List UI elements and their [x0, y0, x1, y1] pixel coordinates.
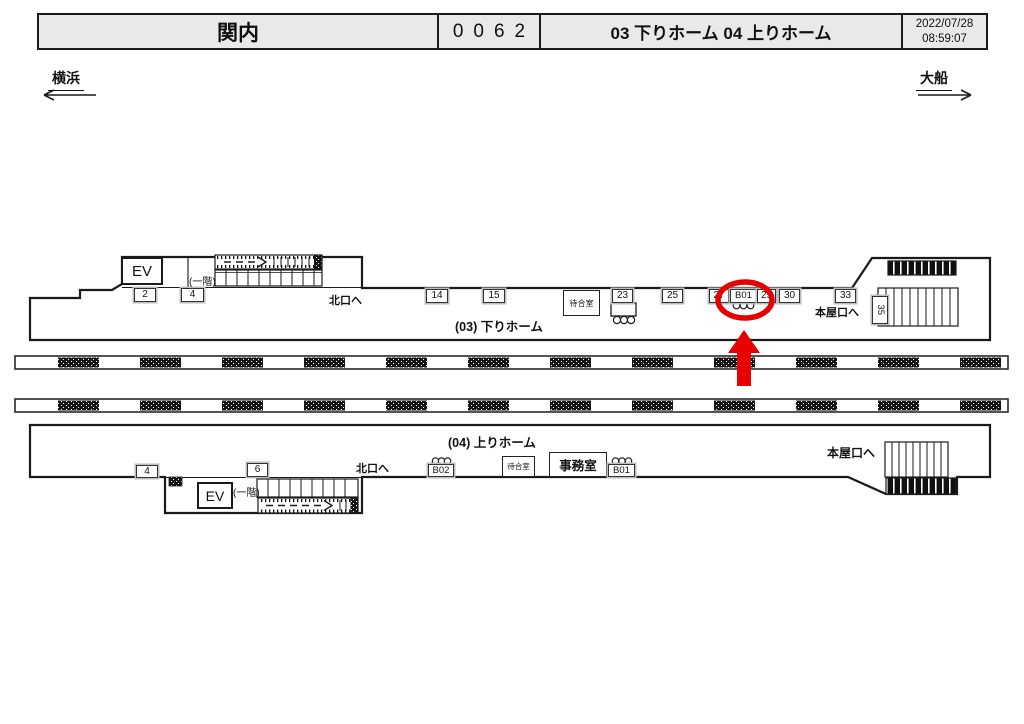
header-bar: 関内 0062 03 下りホーム 04 上りホーム 2022/07/28 08:… — [37, 13, 988, 50]
escalator-down-right — [888, 261, 956, 275]
date-text: 2022/07/28 — [916, 17, 974, 32]
marker-up-6: 6 — [247, 463, 268, 477]
marker-down-14: 14 — [426, 289, 448, 303]
arrow-right-ofuna-icon — [918, 90, 971, 100]
north-exit-down: 北口へ — [329, 292, 362, 308]
platform-up-title: (04) 上りホーム — [448, 432, 536, 451]
direction-ofuna: 大船 — [916, 68, 952, 91]
marker-down-33: 33 — [835, 289, 856, 303]
arrow-left-yokohama-icon — [44, 90, 96, 100]
platform-names: 03 下りホーム 04 上りホーム — [541, 15, 903, 48]
marker-down-29: 29 — [757, 289, 776, 303]
main-exit-up: 本屋口へ — [827, 444, 875, 461]
elevator-down: EV — [121, 257, 163, 285]
station-code: 0062 — [439, 15, 541, 48]
marker-down-b01-highlighted: B01 — [730, 289, 757, 303]
floor-note-down: (一階) — [189, 273, 216, 288]
diagram-base — [0, 0, 1024, 724]
stairs-down-right — [878, 288, 958, 326]
kiosk-icon-down-23 — [611, 303, 636, 324]
marker-down-35: 35 — [872, 296, 888, 324]
escalator-up-left — [258, 498, 358, 513]
marker-down-23: 23 — [612, 289, 633, 303]
time-text: 08:59:07 — [922, 32, 967, 47]
direction-yokohama: 横浜 — [48, 68, 84, 91]
kiosk-icon-down-b01 — [733, 302, 754, 309]
marker-down-27: 27 — [709, 289, 729, 303]
station-platform-map: 関内 0062 03 下りホーム 04 上りホーム 2022/07/28 08:… — [0, 0, 1024, 724]
track-down — [15, 356, 1008, 369]
marker-down-2: 2 — [134, 288, 156, 302]
waiting-room-up: 待合室 — [502, 456, 535, 477]
marker-down-25: 25 — [662, 289, 683, 303]
stairs-up-left — [257, 479, 358, 497]
floor-note-up: (一階) — [233, 484, 260, 499]
waiting-room-down: 待合室 — [563, 290, 600, 316]
platform-down-title: (03) 下りホーム — [455, 316, 543, 335]
timestamp: 2022/07/28 08:59:07 — [903, 15, 986, 48]
main-exit-down: 本屋口へ — [815, 304, 859, 320]
station-name: 関内 — [39, 15, 439, 48]
elevator-up: EV — [197, 482, 233, 509]
marker-up-b02: B02 — [428, 464, 454, 477]
office-up: 事務室 — [549, 452, 607, 477]
marker-down-30: 30 — [779, 289, 800, 303]
stairs-up-right — [885, 442, 948, 477]
marker-down-4: 4 — [181, 288, 204, 302]
escalator-up-right — [886, 478, 956, 494]
north-exit-up: 北口へ — [356, 460, 389, 476]
marker-down-35-label: 35 — [875, 305, 885, 316]
pillar-icon — [169, 477, 182, 486]
marker-up-4: 4 — [136, 465, 158, 478]
escalator-down-left — [215, 255, 322, 269]
track-up — [15, 399, 1008, 412]
marker-down-15: 15 — [483, 289, 505, 303]
stairs-down-left — [215, 270, 322, 286]
marker-up-b01: B01 — [608, 464, 635, 477]
